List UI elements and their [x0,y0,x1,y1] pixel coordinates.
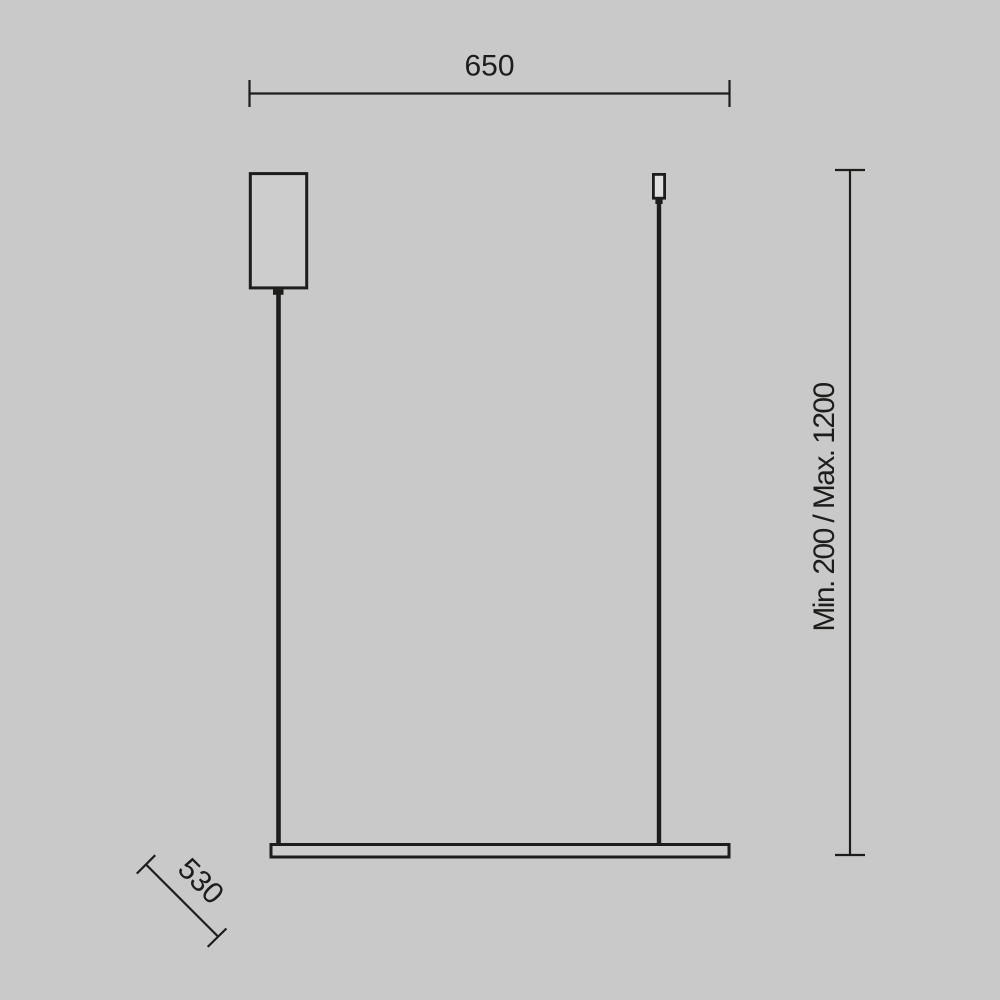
svg-text:Min. 200 / Max. 1200: Min. 200 / Max. 1200 [808,383,841,632]
svg-text:650: 650 [464,50,514,83]
